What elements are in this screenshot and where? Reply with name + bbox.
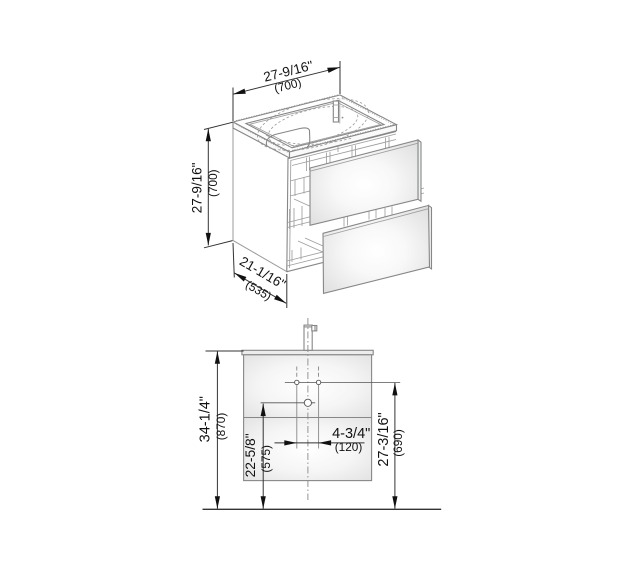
svg-text:27-9/16": 27-9/16" — [189, 162, 204, 213]
svg-text:(700): (700) — [206, 169, 220, 197]
svg-text:(120): (120) — [335, 440, 363, 454]
svg-text:(870): (870) — [214, 413, 228, 441]
svg-text:(575): (575) — [259, 445, 273, 473]
svg-text:(690): (690) — [391, 429, 405, 457]
svg-text:34-1/4": 34-1/4" — [197, 396, 213, 442]
svg-text:27-3/16": 27-3/16" — [376, 412, 392, 466]
svg-text:22-5/8": 22-5/8" — [243, 433, 258, 477]
